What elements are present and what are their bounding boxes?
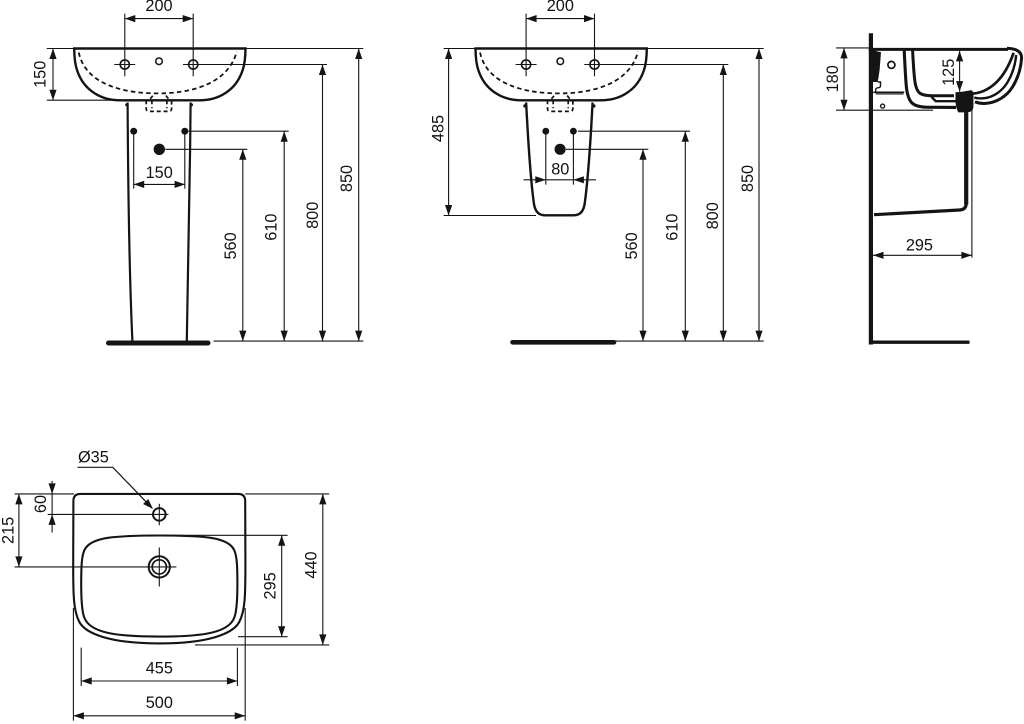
svg-text:125: 125: [940, 59, 958, 86]
svg-text:560: 560: [222, 232, 240, 259]
svg-text:200: 200: [547, 0, 574, 15]
svg-text:485: 485: [429, 115, 447, 142]
svg-text:80: 80: [551, 160, 569, 178]
svg-text:150: 150: [32, 61, 50, 88]
svg-text:850: 850: [338, 165, 356, 192]
svg-text:60: 60: [32, 495, 50, 513]
svg-text:800: 800: [704, 202, 722, 229]
svg-text:180: 180: [824, 65, 842, 92]
svg-text:440: 440: [302, 551, 320, 578]
svg-text:215: 215: [0, 517, 18, 544]
svg-text:850: 850: [739, 165, 757, 192]
svg-text:Ø35: Ø35: [78, 449, 109, 467]
svg-text:560: 560: [623, 232, 641, 259]
svg-text:150: 150: [146, 164, 173, 182]
svg-text:295: 295: [262, 572, 280, 599]
svg-text:295: 295: [906, 236, 933, 254]
svg-text:610: 610: [664, 214, 682, 241]
svg-text:800: 800: [304, 202, 322, 229]
svg-text:455: 455: [146, 660, 173, 678]
svg-text:610: 610: [262, 214, 280, 241]
svg-text:500: 500: [146, 694, 173, 712]
svg-text:200: 200: [145, 0, 172, 15]
